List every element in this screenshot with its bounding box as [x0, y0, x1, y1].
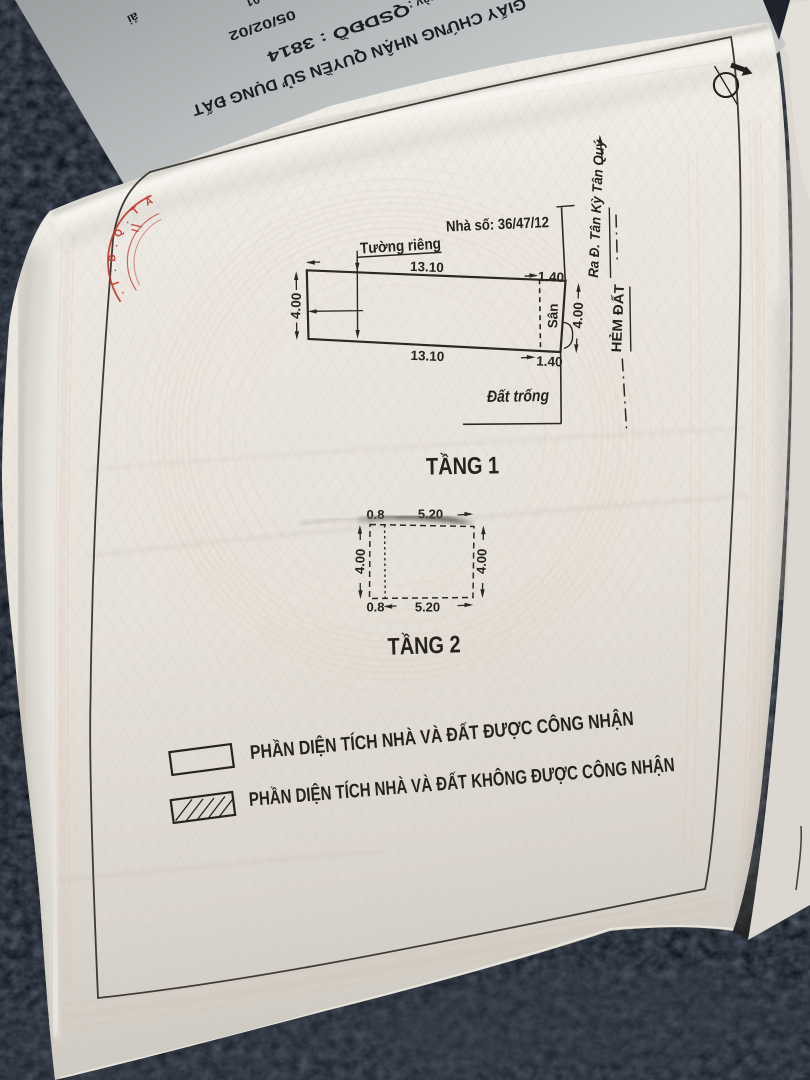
svg-text:Sân: Sân [545, 303, 561, 328]
svg-text:1.40: 1.40 [536, 354, 563, 370]
svg-text:13.10: 13.10 [410, 348, 444, 364]
svg-text:TẦNG 1: TẦNG 1 [426, 451, 499, 480]
svg-text:5.20: 5.20 [415, 600, 440, 615]
svg-text:Đ: Đ [107, 254, 118, 262]
svg-text:4.00: 4.00 [288, 292, 304, 319]
svg-text:HẺM ĐẤT: HẺM ĐẤT [608, 283, 627, 352]
svg-text:4.00: 4.00 [474, 548, 490, 574]
svg-text:13.10: 13.10 [410, 259, 444, 275]
svg-text:TẦNG 2: TẦNG 2 [387, 630, 461, 661]
svg-text:4.00: 4.00 [352, 548, 368, 574]
svg-text:1.40: 1.40 [538, 269, 565, 285]
svg-text:Đất trống: Đất trống [487, 387, 549, 406]
svg-text:0.8: 0.8 [366, 600, 384, 615]
svg-text:4.00: 4.00 [570, 302, 586, 329]
